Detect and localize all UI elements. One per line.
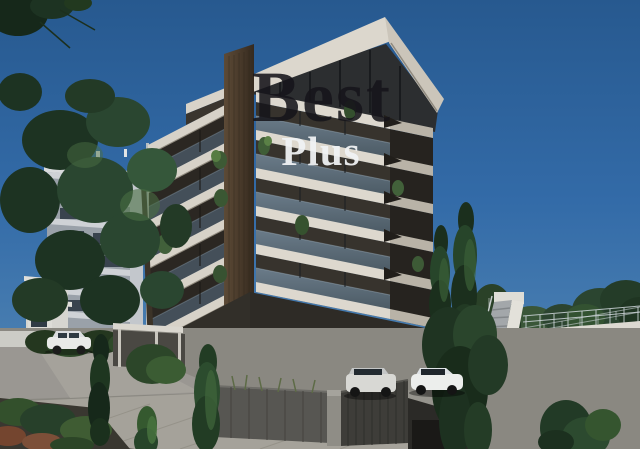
render-canvas: Best Plus xyxy=(0,0,640,449)
property-render-image: Best Plus xyxy=(0,0,640,449)
watermark-line1: Best xyxy=(252,57,392,137)
watermark-line2: Plus xyxy=(281,128,360,174)
